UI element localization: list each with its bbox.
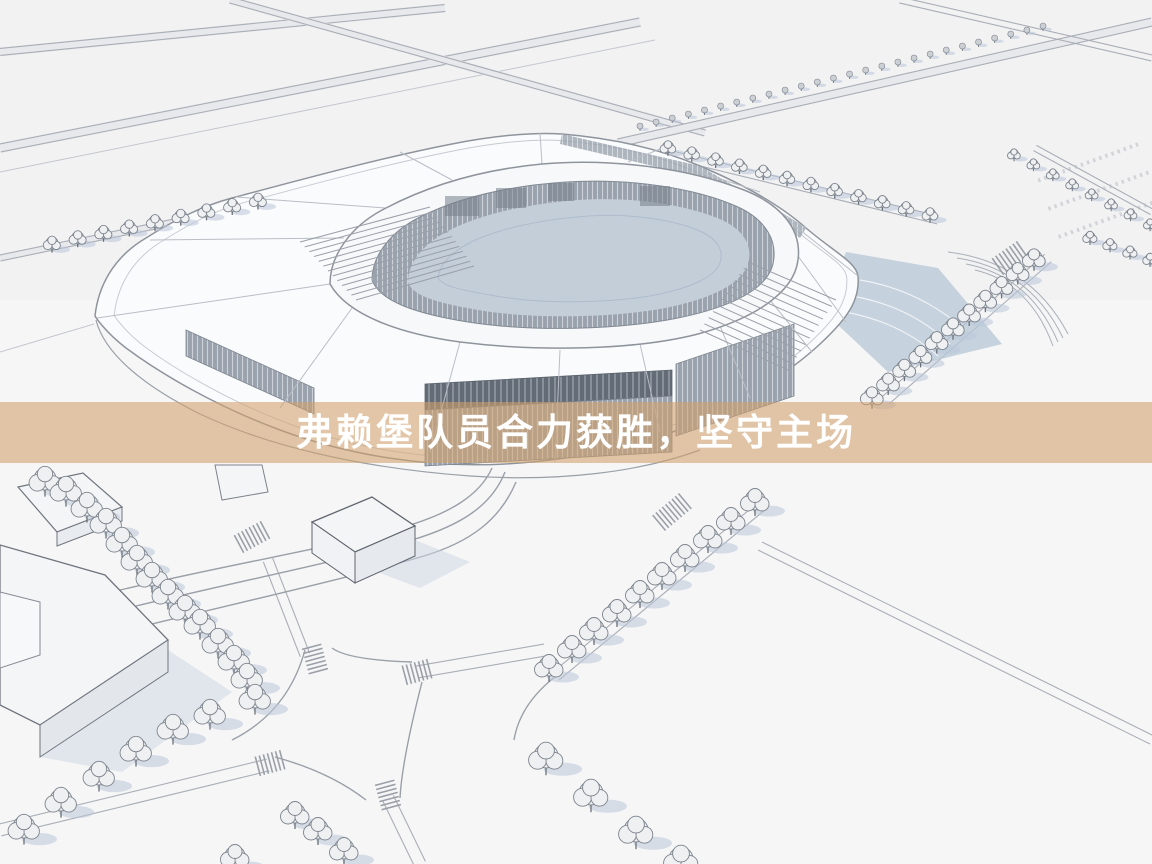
stadium-aerial-render: 弗赖堡队员合力获胜，坚守主场 [0,0,1152,864]
headline-text: 弗赖堡队员合力获胜，坚守主场 [296,414,856,451]
headline-banner: 弗赖堡队员合力获胜，坚守主场 [0,402,1152,463]
